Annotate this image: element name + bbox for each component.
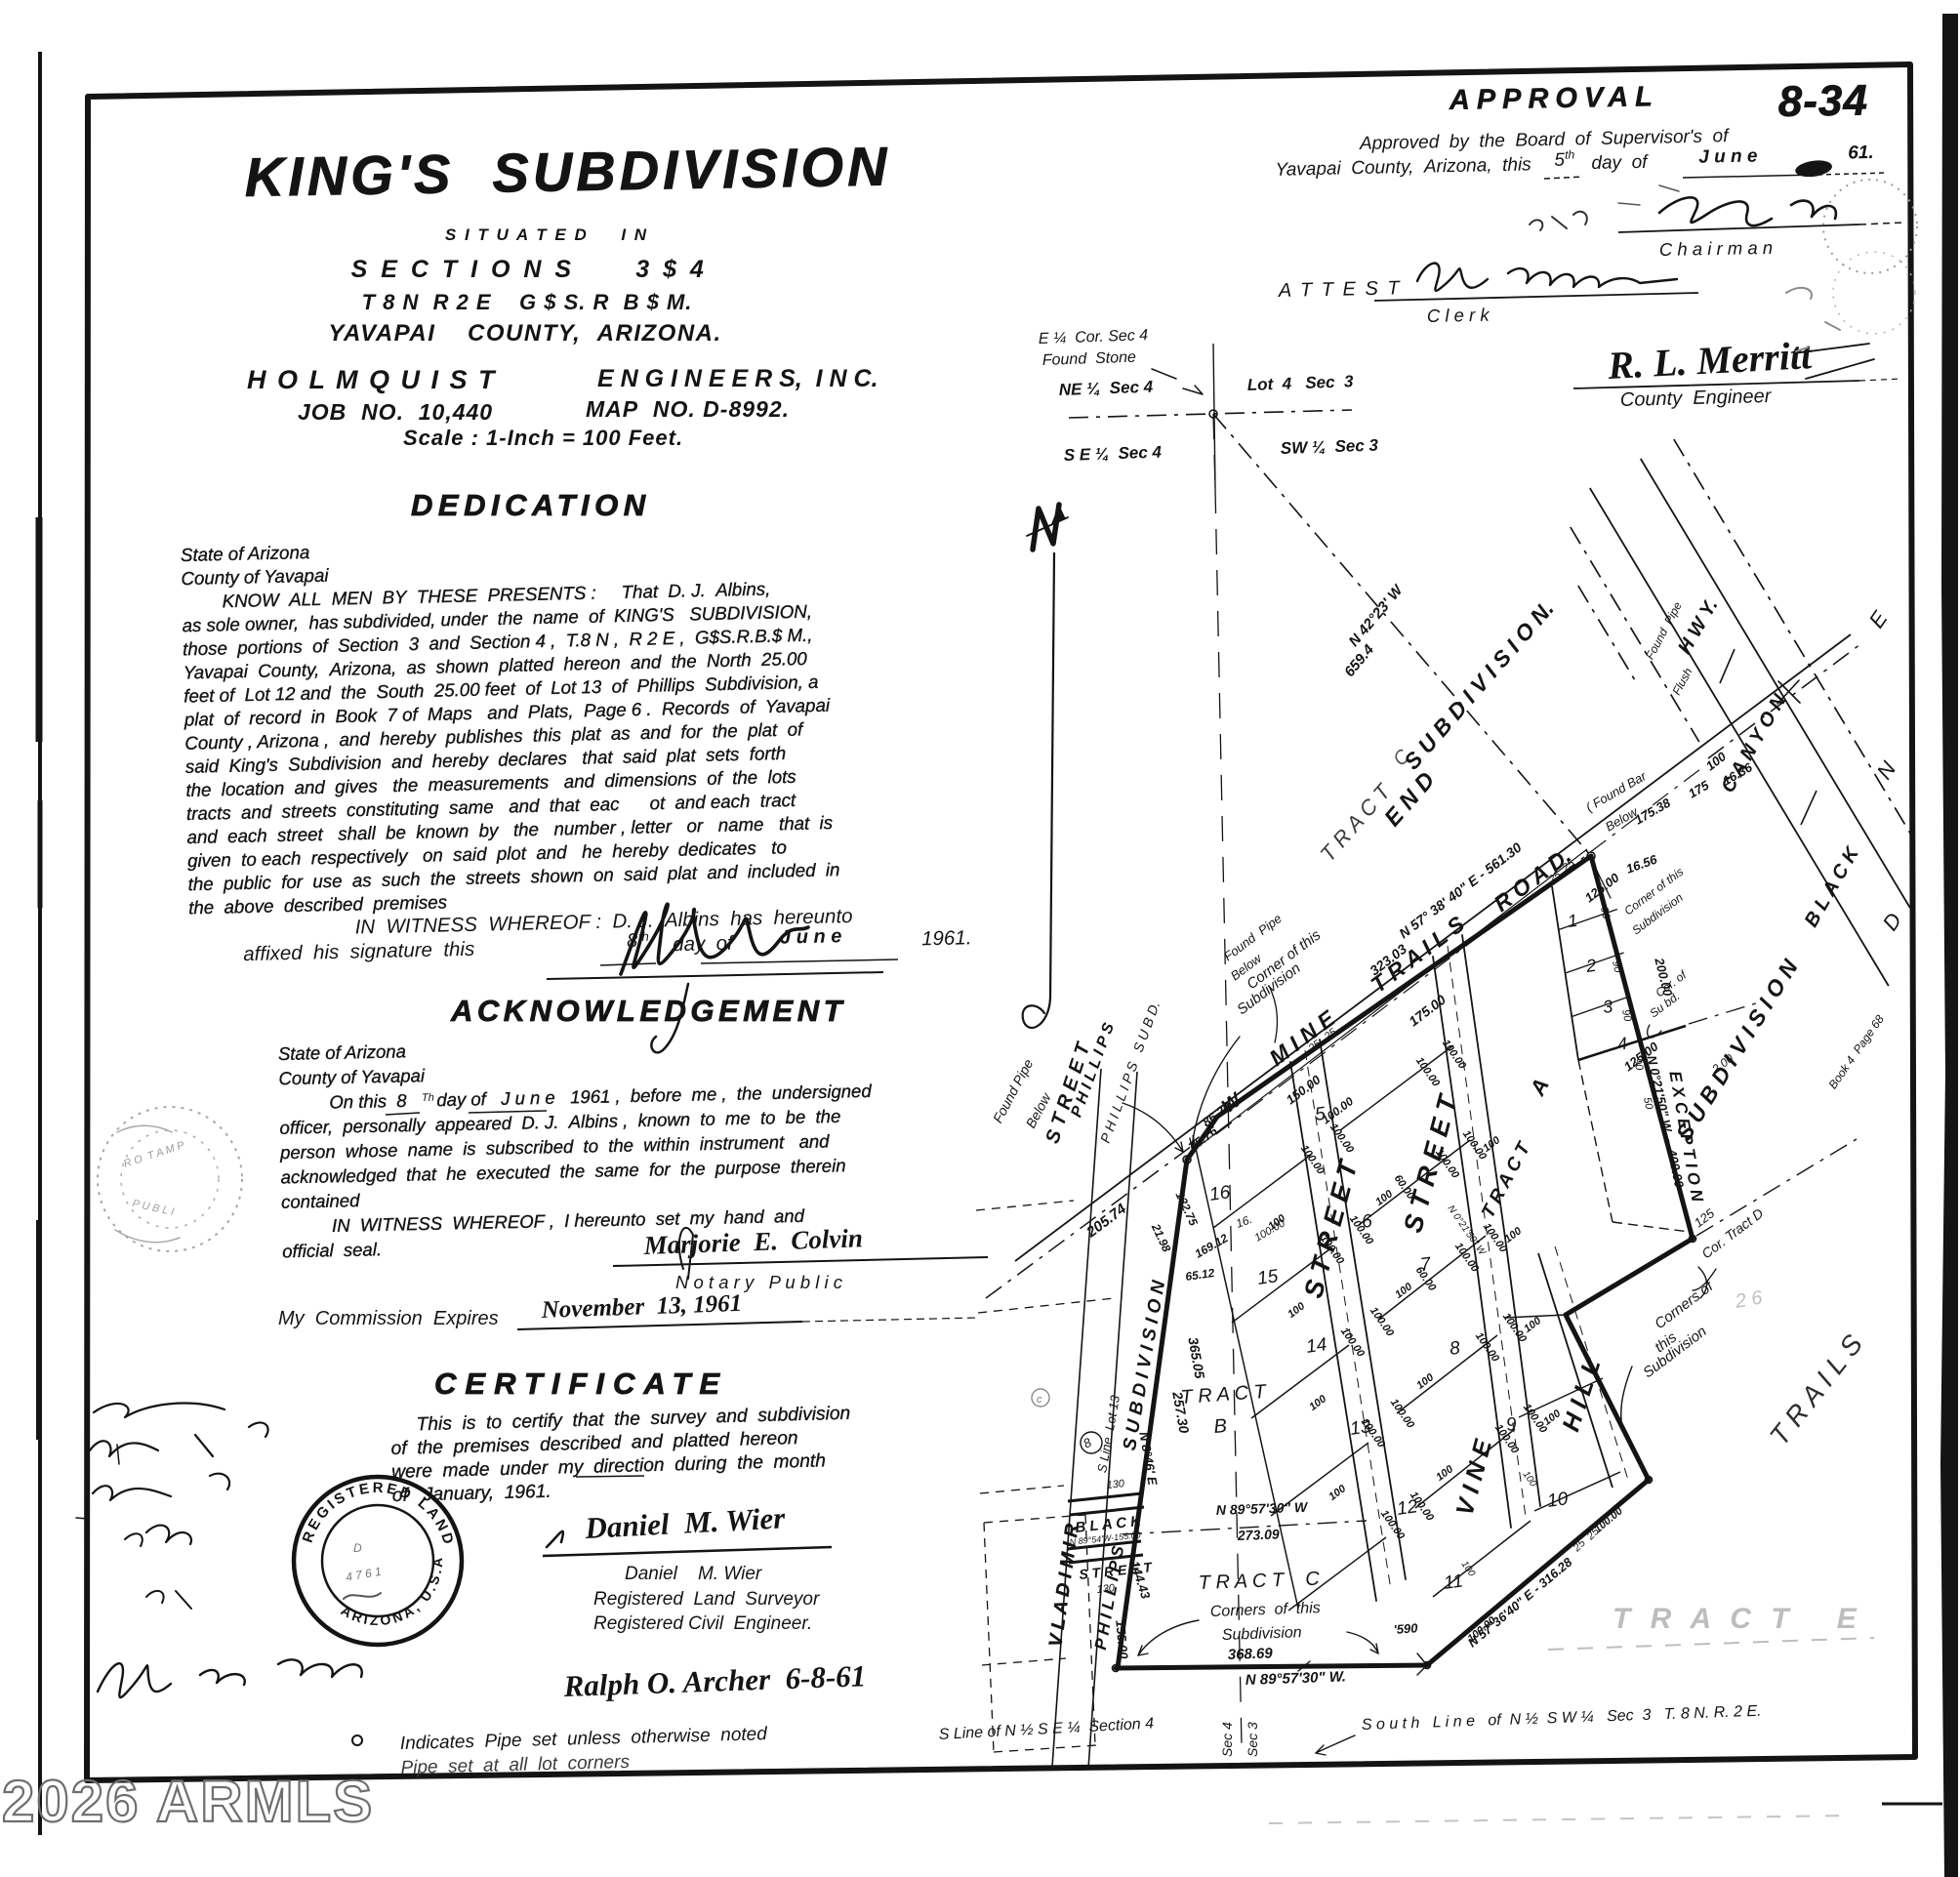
svg-text:368.69: 368.69	[1228, 1645, 1274, 1663]
svg-text:ACKNOWLEDGEMENT: ACKNOWLEDGEMENT	[450, 994, 846, 1028]
svg-text:MAP NO. D-8992.: MAP NO. D-8992.	[586, 396, 790, 422]
svg-text:Registered Civil Engineer.: Registered Civil Engineer.	[593, 1613, 812, 1634]
svg-text:Lot 4 Sec 3: Lot 4 Sec 3	[1246, 372, 1354, 394]
svg-text:N 89°57'30" W.: N 89°57'30" W.	[1245, 1668, 1347, 1689]
svg-text:5: 5	[1554, 150, 1565, 171]
svg-text:N o t a r y P u b l i c: N o t a r y P u b l i c	[675, 1272, 843, 1292]
svg-text:Scale : 1-Inch = 100 Feet.: Scale : 1-Inch = 100 Feet.	[403, 426, 683, 450]
svg-text:S E ¼ Sec 4: S E ¼ Sec 4	[1063, 442, 1162, 465]
svg-text:APPROVAL: APPROVAL	[1449, 81, 1660, 116]
svg-text:61.: 61.	[1848, 143, 1874, 164]
svg-text:16: 16	[1208, 1182, 1232, 1205]
svg-text:B: B	[1213, 1415, 1228, 1438]
svg-text:Found Stone: Found Stone	[1042, 349, 1137, 369]
svg-text:SW ¼ Sec 3: SW ¼ Sec 3	[1280, 435, 1378, 458]
svg-text:State of Arizona: State of Arizona	[181, 542, 310, 565]
svg-text:C h a i r m a n: C h a i r m a n	[1659, 237, 1774, 260]
svg-text:T 8 N R 2 E G $ S. R B $: T 8 N R 2 E G $ S. R B $ M.	[362, 290, 693, 314]
svg-text:130: 130	[1096, 1582, 1116, 1596]
svg-text:Sec 3: Sec 3	[1245, 1722, 1260, 1757]
svg-text:T R A C T C: T R A C T C	[1198, 1569, 1320, 1594]
svg-text:130: 130	[1106, 1478, 1125, 1491]
svg-text:CERTIFICATE: CERTIFICATE	[434, 1367, 728, 1401]
svg-text:C l e r k: C l e r k	[1427, 305, 1491, 326]
svg-text:State of Arizona: State of Arizona	[278, 1041, 406, 1064]
svg-text:YAVAPAI COUNTY, ARIZONA.: YAVAPAI COUNTY, ARIZONA.	[328, 320, 721, 347]
svg-text:Th: Th	[422, 1092, 434, 1104]
svg-text:official seal.: official seal.	[282, 1239, 382, 1261]
svg-text:273.09: 273.09	[1237, 1527, 1281, 1544]
svg-text:E N G I N E E R S, I N C.: E N G I N E E R S, I N C.	[597, 365, 878, 392]
svg-text:My Commission Expires: My Commission Expires	[278, 1308, 499, 1329]
svg-text:2026 ARMLS: 2026 ARMLS	[2, 1769, 374, 1834]
svg-text:KING'S SUBDIVISION: KING'S SUBDIVISION	[244, 135, 891, 208]
svg-text:th: th	[1565, 147, 1575, 161]
svg-text:DEDICATION: DEDICATION	[411, 488, 651, 522]
svg-text:8-34: 8-34	[1777, 76, 1868, 126]
svg-text:D: D	[353, 1541, 362, 1555]
svg-text:NE ¼ Sec 4: NE ¼ Sec 4	[1058, 378, 1154, 399]
svg-text:A T T E S T: A T T E S T	[1278, 277, 1402, 302]
svg-text:15: 15	[1256, 1266, 1280, 1289]
svg-text:N 89°57'30" W: N 89°57'30" W	[1216, 1499, 1310, 1518]
svg-text:Subdivision: Subdivision	[1222, 1624, 1302, 1644]
svg-text:14: 14	[1305, 1334, 1328, 1358]
svg-text:T R A C T E: T R A C T E	[1613, 1603, 1862, 1635]
svg-text:JOB NO. 10,440: JOB NO. 10,440	[298, 399, 493, 425]
svg-text:'590: '590	[1393, 1620, 1419, 1637]
svg-text:County Engineer: County Engineer	[1620, 386, 1773, 411]
svg-text:H O L M Q U I S T: H O L M Q U I S T	[247, 365, 497, 394]
svg-text:J u n e: J u n e	[1698, 145, 1758, 167]
svg-text:contained: contained	[281, 1190, 360, 1212]
svg-text:Daniel M. Wier: Daniel M. Wier	[625, 1564, 762, 1584]
svg-text:S I T U A T E D I N: S I T U A T E D I N	[445, 225, 648, 244]
svg-text:c: c	[1037, 1394, 1042, 1406]
svg-text:1961.: 1961.	[921, 926, 972, 950]
svg-text:Sec 4: Sec 4	[1219, 1722, 1235, 1757]
svg-text:County of Yavapai: County of Yavapai	[181, 565, 329, 589]
svg-text:day of: day of	[1591, 152, 1649, 174]
svg-text:Registered Land Surveyor: Registered Land Surveyor	[593, 1589, 820, 1610]
svg-text:County of Yavapai: County of Yavapai	[278, 1065, 426, 1088]
svg-text:S E C T I O N S 3 $ 4: S E C T I O N S 3 $ 4	[351, 256, 708, 283]
svg-text:10: 10	[1546, 1489, 1570, 1512]
svg-text:J u n e: J u n e	[780, 925, 842, 948]
